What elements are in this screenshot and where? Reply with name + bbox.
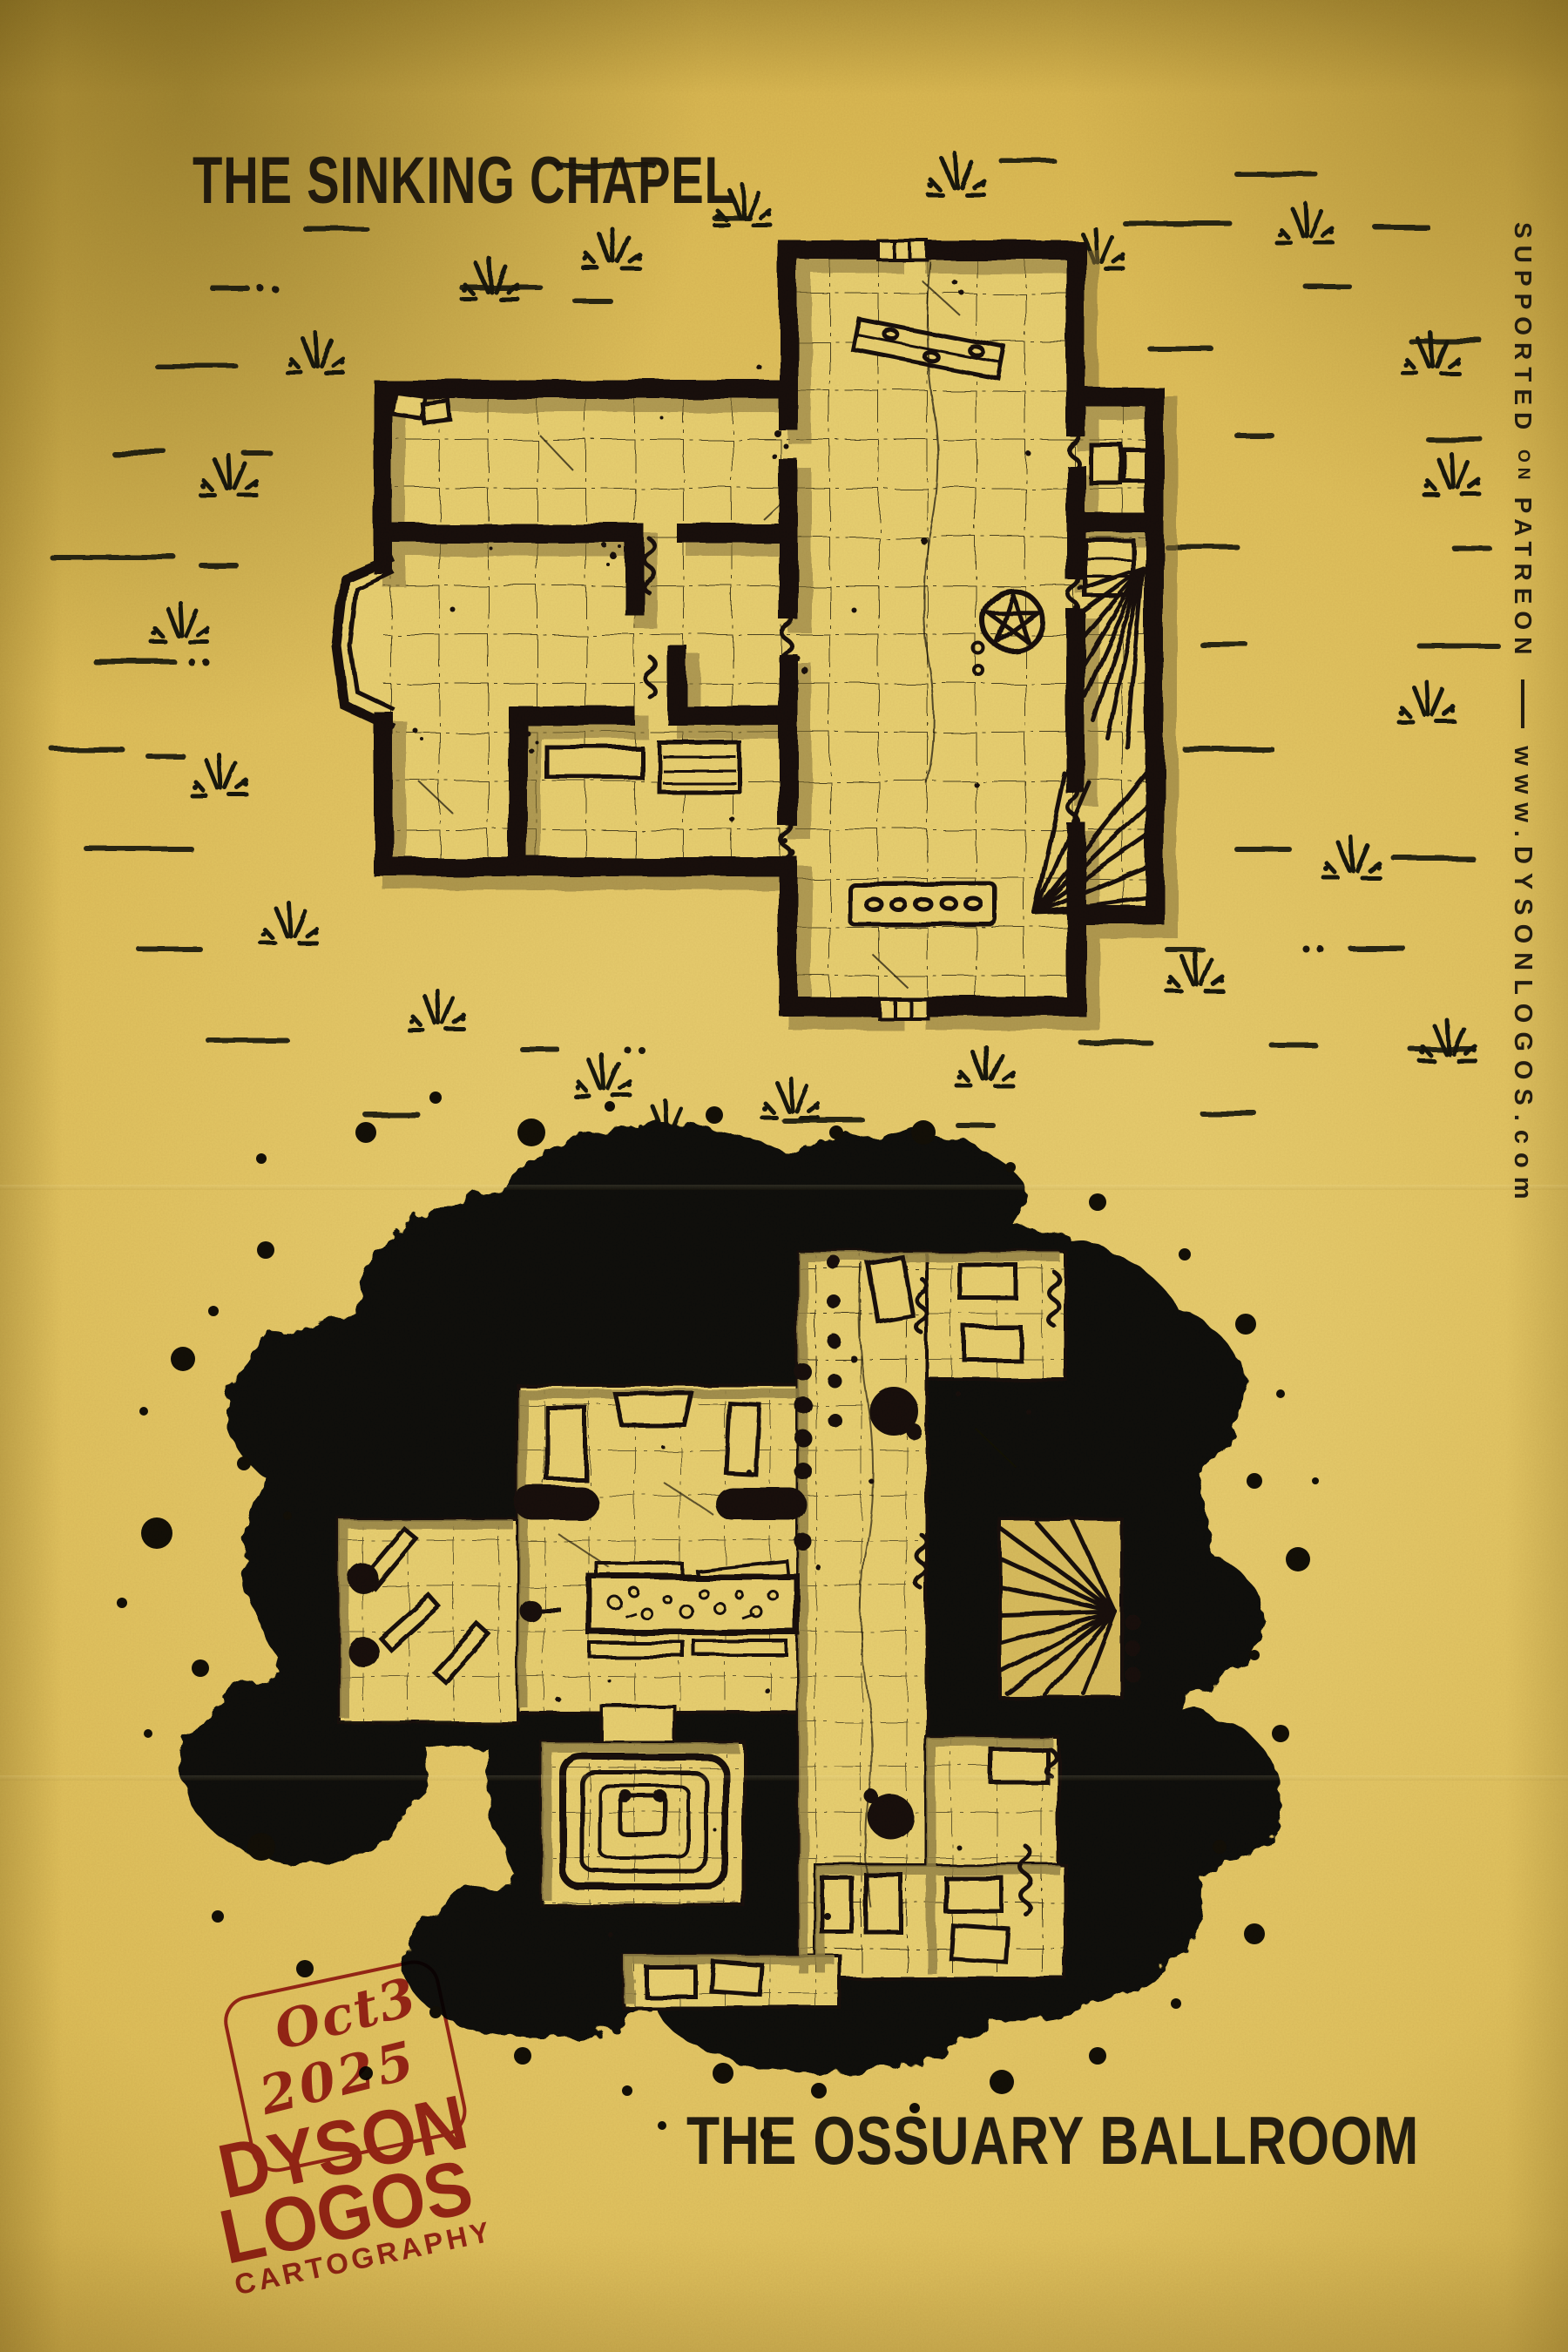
sidebar-patreon-label: PATREON [1510,497,1537,662]
sidebar-on-label: ON [1514,449,1532,485]
bone-bench [849,884,996,924]
sinking-chapel-map [52,154,1498,1139]
map-title-ossuary-ballroom: THE OSSUARY BALLROOM [686,2101,1419,2180]
patreon-sidebar: SUPPORTED ON PATREON www.DYSONLOGOS.com [1508,222,1537,1355]
sidebar-divider [1521,679,1524,728]
bone-table [590,1561,797,1657]
map-title-sinking-chapel: THE SINKING CHAPEL [193,143,735,219]
sidebar-website-url: www.DYSONLOGOS.com [1509,746,1537,1207]
sidebar-supported-label: SUPPORTED [1510,222,1537,436]
map-poster-page: THE SINKING CHAPEL THE OSSUARY BALLROOM … [0,0,1568,2352]
